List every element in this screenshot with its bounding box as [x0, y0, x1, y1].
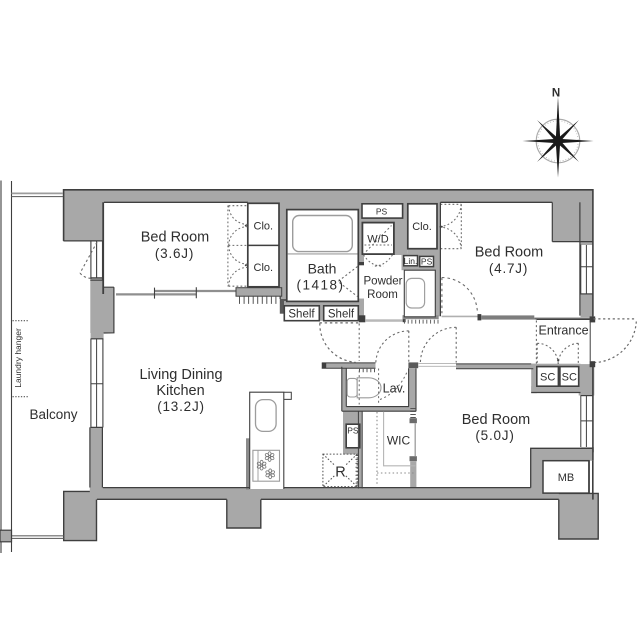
svg-text:SC: SC: [562, 372, 577, 384]
svg-text:PS: PS: [421, 257, 433, 267]
svg-text:WIC: WIC: [387, 434, 411, 448]
svg-text:(3.6J): (3.6J): [155, 246, 194, 261]
svg-text:Bath: Bath: [308, 261, 337, 277]
svg-text:(13.2J): (13.2J): [157, 399, 205, 414]
svg-text:Clo.: Clo.: [254, 221, 274, 233]
svg-text:Living Dining: Living Dining: [139, 367, 222, 383]
svg-text:Shelf: Shelf: [288, 309, 315, 321]
svg-text:PS: PS: [347, 426, 359, 436]
svg-text:PS: PS: [376, 207, 388, 217]
svg-text:Shelf: Shelf: [328, 309, 355, 321]
svg-text:R: R: [335, 465, 345, 481]
svg-text:Bed Room: Bed Room: [462, 412, 531, 428]
svg-text:W/D: W/D: [367, 234, 388, 246]
svg-text:Balcony: Balcony: [29, 407, 77, 422]
svg-text:SC: SC: [540, 372, 555, 384]
svg-text:Bed Room: Bed Room: [141, 230, 210, 246]
svg-text:Powder: Powder: [364, 276, 403, 288]
svg-text:Clo.: Clo.: [254, 262, 274, 274]
svg-text:Clo.: Clo.: [412, 221, 432, 233]
svg-text:Entrance: Entrance: [538, 324, 588, 338]
svg-text:(4.7J): (4.7J): [489, 261, 528, 276]
svg-text:Lin.: Lin.: [404, 256, 418, 266]
svg-text:Lav.: Lav.: [383, 382, 406, 396]
svg-text:Bed Room: Bed Room: [475, 245, 544, 261]
svg-text:N: N: [552, 88, 560, 100]
svg-text:(1418): (1418): [296, 278, 344, 293]
svg-text:Kitchen: Kitchen: [156, 383, 204, 399]
svg-text:Laundry hanger: Laundry hanger: [13, 328, 23, 388]
svg-text:(5.0J): (5.0J): [475, 428, 514, 443]
svg-text:MB: MB: [558, 472, 575, 484]
svg-text:Room: Room: [367, 289, 398, 301]
